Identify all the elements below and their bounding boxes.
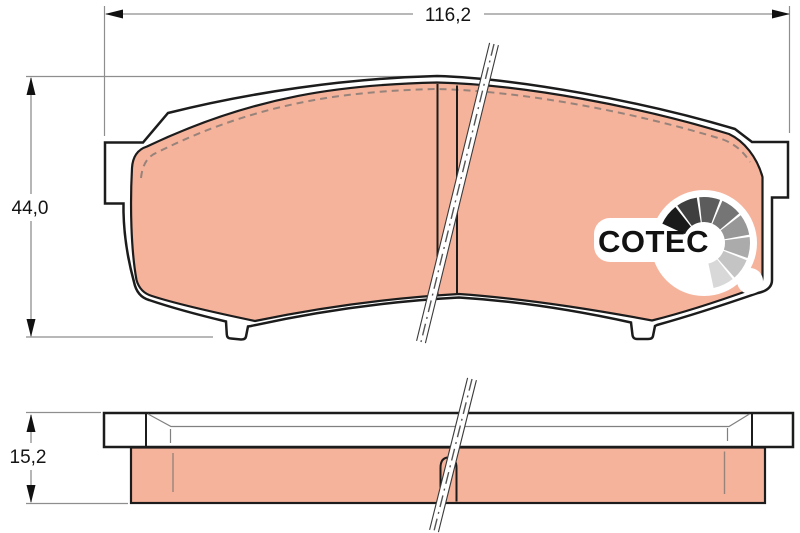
- height-dimension-label: 44,0: [12, 198, 49, 219]
- friction-material: [131, 83, 762, 322]
- arrowhead-up-icon: [27, 77, 36, 95]
- width-dimension-label: 116,2: [425, 5, 471, 26]
- brake-pad-drawing: 116,2 44,0 15,2: [0, 0, 800, 533]
- arrowhead-down-icon: [27, 485, 36, 503]
- arrowhead-down-icon: [27, 319, 36, 337]
- arrowhead-right-icon: [772, 10, 790, 19]
- technical-drawing-canvas: 116,2 44,0 15,2: [0, 0, 800, 533]
- arrowhead-up-icon: [27, 414, 36, 432]
- backing-plate-side: [104, 413, 793, 447]
- cotec-logo-text: COTEC: [598, 224, 709, 259]
- logo-halo-tail: [737, 268, 763, 294]
- thickness-dimension-label: 15,2: [10, 447, 47, 468]
- arrowhead-left-icon: [105, 10, 123, 19]
